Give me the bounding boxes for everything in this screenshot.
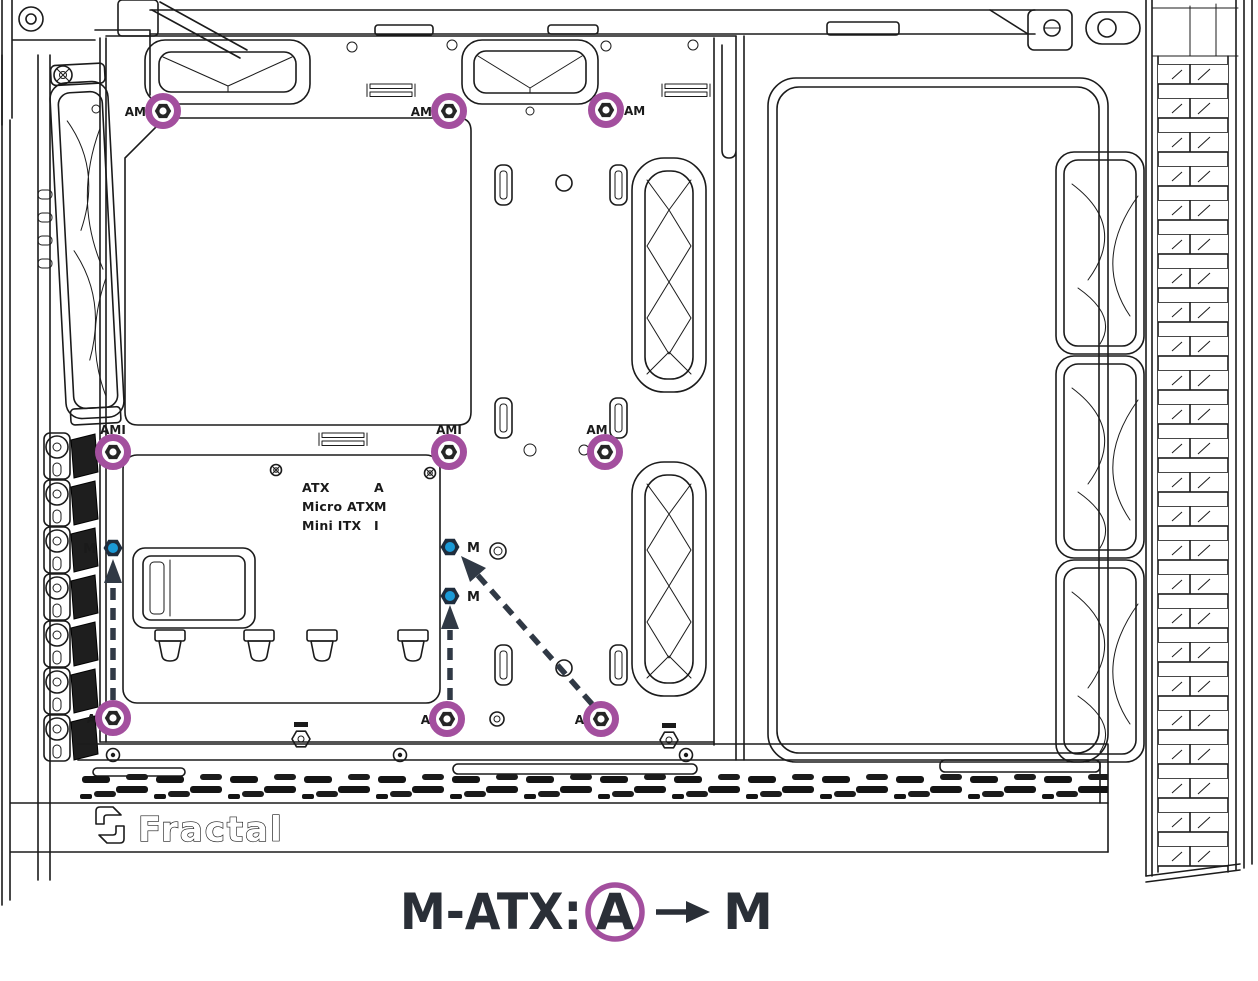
bottom-section: Fractal bbox=[2, 55, 1108, 905]
expansion-slot bbox=[44, 574, 98, 620]
front-panel bbox=[768, 78, 1108, 762]
m-standoff-right-lower bbox=[441, 588, 460, 604]
caption-target-letter: M bbox=[723, 883, 773, 941]
cable-clip bbox=[610, 398, 627, 438]
standoff-circled-mid-mid bbox=[435, 438, 464, 467]
panel-clips bbox=[155, 630, 428, 661]
legend-code-itx: I bbox=[374, 518, 379, 533]
panel-screw bbox=[271, 465, 282, 476]
standoff-label: AM bbox=[624, 104, 645, 118]
motherboard-tray bbox=[92, 36, 744, 760]
rear-exhaust-fan bbox=[48, 63, 125, 426]
vent-slot-lower bbox=[632, 462, 706, 696]
fractal-logo: Fractal bbox=[96, 807, 284, 850]
arrow-right-icon bbox=[656, 901, 710, 923]
standoff-circled-mid-left bbox=[99, 438, 128, 467]
cable-tie-mount bbox=[319, 433, 367, 446]
cpu-cutout-panel bbox=[125, 118, 471, 425]
legend-name-atx: ATX bbox=[302, 480, 330, 495]
legend-name-matx: Micro ATX bbox=[302, 499, 375, 514]
standoff-circled-top-mid bbox=[435, 97, 464, 126]
standoff-circled-bot-right bbox=[587, 705, 616, 734]
cable-clip bbox=[610, 165, 627, 205]
standoff-circled-top-left bbox=[149, 97, 178, 126]
standoff-label: AM bbox=[411, 105, 432, 119]
front-vent-ladder bbox=[1146, 0, 1258, 884]
hex-cable-anchor bbox=[292, 722, 310, 747]
panel-screw bbox=[425, 468, 436, 479]
case-diagram-page: ATX A Micro ATX M Mini ITX I Fractal bbox=[0, 0, 1258, 981]
fractal-logo-text: Fractal bbox=[138, 810, 284, 850]
cable-tie-mount bbox=[662, 84, 710, 97]
cable-tie-mount bbox=[367, 84, 415, 97]
case-diagram-illustration: ATX A Micro ATX M Mini ITX I Fractal bbox=[0, 0, 1258, 981]
cable-clip bbox=[610, 645, 627, 685]
standoff-label: A bbox=[87, 712, 97, 726]
standoff-circled-bot-mid bbox=[433, 705, 462, 734]
front-fans bbox=[1056, 152, 1144, 762]
cable-grommet-right bbox=[462, 40, 598, 104]
cable-clip bbox=[495, 398, 512, 438]
standoff-label: AM bbox=[586, 423, 607, 437]
expansion-slot bbox=[44, 433, 98, 479]
front-fan-1 bbox=[1056, 152, 1144, 354]
standoff-label: AM bbox=[125, 105, 146, 119]
standoff-label: A bbox=[421, 713, 431, 727]
expansion-slot bbox=[44, 480, 98, 526]
caption-circled-letter: A bbox=[596, 883, 635, 941]
standoff-circled-bot-left bbox=[99, 704, 128, 733]
cable-clip bbox=[495, 165, 512, 205]
m-standoff-label: M bbox=[467, 541, 480, 556]
accessory-panel: ATX A Micro ATX M Mini ITX I bbox=[123, 455, 440, 703]
legend-name-itx: Mini ITX bbox=[302, 518, 362, 533]
motherboard-legend: ATX A Micro ATX M Mini ITX I bbox=[302, 480, 387, 533]
m-standoff-label: M bbox=[467, 590, 480, 605]
cable-clip bbox=[495, 645, 512, 685]
expansion-slot bbox=[44, 668, 98, 714]
caption-prefix: M-ATX: bbox=[400, 883, 582, 941]
m-standoff-label: M bbox=[83, 542, 96, 557]
move-arrow-diagonal bbox=[474, 571, 592, 704]
standoff-label: AMI bbox=[436, 423, 462, 437]
expansion-slot bbox=[44, 621, 98, 667]
front-fan-3 bbox=[1056, 560, 1144, 762]
m-standoff-right-upper bbox=[441, 539, 460, 555]
legend-code-atx: A bbox=[374, 480, 384, 495]
top-right-hinge bbox=[990, 10, 1140, 50]
ladder-slats bbox=[1158, 64, 1228, 868]
legend-code-matx: M bbox=[374, 499, 387, 514]
bottom-dust-filter bbox=[80, 774, 1108, 801]
standoff-circled-mid-right bbox=[591, 438, 620, 467]
vent-slot-upper bbox=[632, 158, 706, 392]
front-fan-2 bbox=[1056, 356, 1144, 558]
latch-handle bbox=[133, 548, 255, 628]
move-arrow-mid-head bbox=[441, 605, 459, 629]
caption: M-ATX: A M bbox=[400, 883, 773, 941]
standoff-label: A bbox=[575, 713, 585, 727]
standoff-label: AMI bbox=[100, 423, 126, 437]
standoff-circled-top-right bbox=[592, 96, 621, 125]
